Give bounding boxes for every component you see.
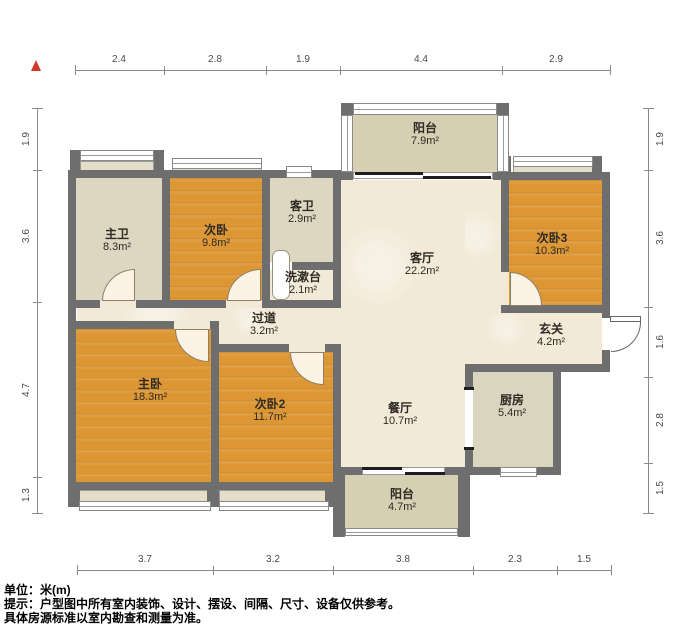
bay-window (513, 156, 593, 167)
balcony-window (353, 103, 497, 115)
sliding-door-panel (423, 176, 491, 179)
balcony-railing (345, 528, 458, 536)
footer-notes: 单位：米(m) 提示：户型图中所有室内装饰、设计、摆设、间隔、尺寸、设备仅供参考… (4, 583, 400, 625)
dim-label: 1.9 (654, 119, 668, 159)
dim-tick (33, 302, 42, 303)
bay-window (79, 501, 211, 511)
room-label-bedroom-2: 次卧211.7m² (225, 398, 315, 424)
dim-tick (340, 66, 341, 75)
door-opening (100, 300, 136, 308)
dim-tick (502, 66, 503, 75)
wall (501, 305, 610, 313)
wall-post (70, 150, 80, 178)
dim-label: 1.5 (654, 468, 668, 508)
balcony-window (497, 115, 509, 172)
dimension-line-left (37, 108, 38, 513)
dim-label: 4.7 (20, 370, 34, 410)
wall (458, 475, 470, 537)
dim-label: 2.8 (654, 400, 668, 440)
wall-post (154, 150, 164, 178)
wall-post (497, 103, 509, 115)
dim-tick (333, 566, 334, 575)
dim-label: 4.4 (401, 54, 441, 65)
dimension-line-bottom (77, 570, 611, 571)
room-label-master-bath: 主卫8.3m² (72, 228, 162, 254)
dim-tick (213, 566, 214, 575)
entry-door-opening (602, 318, 610, 350)
disclaimer-line-2: 具体房源标准以室内勘查和测量为准。 (4, 611, 400, 625)
wall-post (341, 103, 353, 115)
dim-tick (75, 65, 76, 75)
room-label-living: 客厅22.2m² (377, 252, 467, 278)
dim-tick (644, 170, 653, 171)
dim-label: 2.9 (536, 54, 576, 65)
dim-label: 2.3 (495, 554, 535, 565)
dim-label: 3.7 (125, 554, 165, 565)
room-label-guest-bath: 客卫2.9m² (257, 200, 347, 226)
door-opening (174, 321, 210, 329)
dim-label: 1.3 (20, 475, 34, 515)
dim-tick (266, 66, 267, 75)
window (172, 158, 262, 169)
dim-label: 1.5 (564, 554, 604, 565)
dim-tick (32, 108, 43, 109)
dim-tick (643, 513, 654, 514)
room-label-kitchen: 厨房5.4m² (467, 394, 557, 420)
dim-tick (557, 566, 558, 575)
dim-label: 1.6 (654, 322, 668, 362)
window (286, 166, 312, 178)
dim-label: 2.4 (99, 54, 139, 65)
room-label-bedroom: 次卧9.8m² (171, 224, 261, 250)
entry-door-leaf (610, 316, 641, 322)
sliding-door-panel (362, 467, 402, 470)
dim-tick (610, 65, 611, 75)
room-label-corridor: 过道3.2m² (219, 312, 309, 338)
dim-tick (77, 565, 78, 575)
room-label-bedroom-3: 次卧310.3m² (507, 232, 597, 258)
wall (465, 364, 610, 372)
bay-window (80, 150, 154, 161)
wall (68, 170, 76, 490)
door-jamb (464, 387, 474, 390)
dimension-line-top (75, 70, 610, 71)
room-label-master-bedroom: 主卧18.3m² (105, 378, 195, 404)
dim-label: 1.9 (20, 119, 34, 159)
dim-label: 2.8 (195, 54, 235, 65)
dim-tick (611, 565, 612, 575)
wall (162, 170, 170, 308)
sliding-door-panel (405, 472, 445, 475)
dim-tick (33, 477, 42, 478)
dim-tick (644, 463, 653, 464)
door-opening (501, 272, 509, 305)
dim-tick (643, 108, 654, 109)
dim-tick (33, 170, 42, 171)
door-opening (226, 300, 262, 308)
dim-tick (473, 566, 474, 575)
unit-note: 单位：米(m) (4, 583, 400, 597)
room-label-balcony-bottom: 阳台4.7m² (357, 488, 447, 514)
dimension-line-right (648, 108, 649, 513)
dim-tick (644, 307, 653, 308)
dim-tick (644, 377, 653, 378)
dim-tick (164, 66, 165, 75)
dim-label: 3.8 (383, 554, 423, 565)
room-label-balcony-top: 阳台7.9m² (380, 122, 470, 148)
disclaimer-line-1: 提示：户型图中所有室内装饰、设计、摆设、间隔、尺寸、设备仅供参考。 (4, 597, 400, 611)
door-opening (289, 344, 325, 352)
dim-label: 1.9 (283, 54, 323, 65)
north-arrow-icon (31, 60, 41, 71)
room-label-dining: 餐厅10.7m² (355, 402, 445, 428)
door-jamb (464, 447, 474, 450)
kitchen-window (500, 467, 537, 477)
sliding-door-panel (355, 172, 423, 175)
bay-window (219, 501, 329, 511)
passage-opening (333, 308, 341, 344)
wall (68, 482, 341, 490)
room-label-entry: 玄关4.2m² (506, 323, 596, 349)
wall-post (592, 156, 602, 180)
wall (337, 172, 353, 180)
room-label-washstand: 洗漱台2.1m² (258, 271, 348, 297)
floor-plan-page: { "plan_title": "户型图", "rooms": [ {"id":… (0, 0, 686, 640)
dim-label: 3.6 (20, 216, 34, 256)
dim-label: 3.6 (654, 218, 668, 258)
entry-door-arc (611, 322, 641, 352)
dim-label: 3.2 (253, 554, 293, 565)
balcony-window (341, 115, 353, 172)
